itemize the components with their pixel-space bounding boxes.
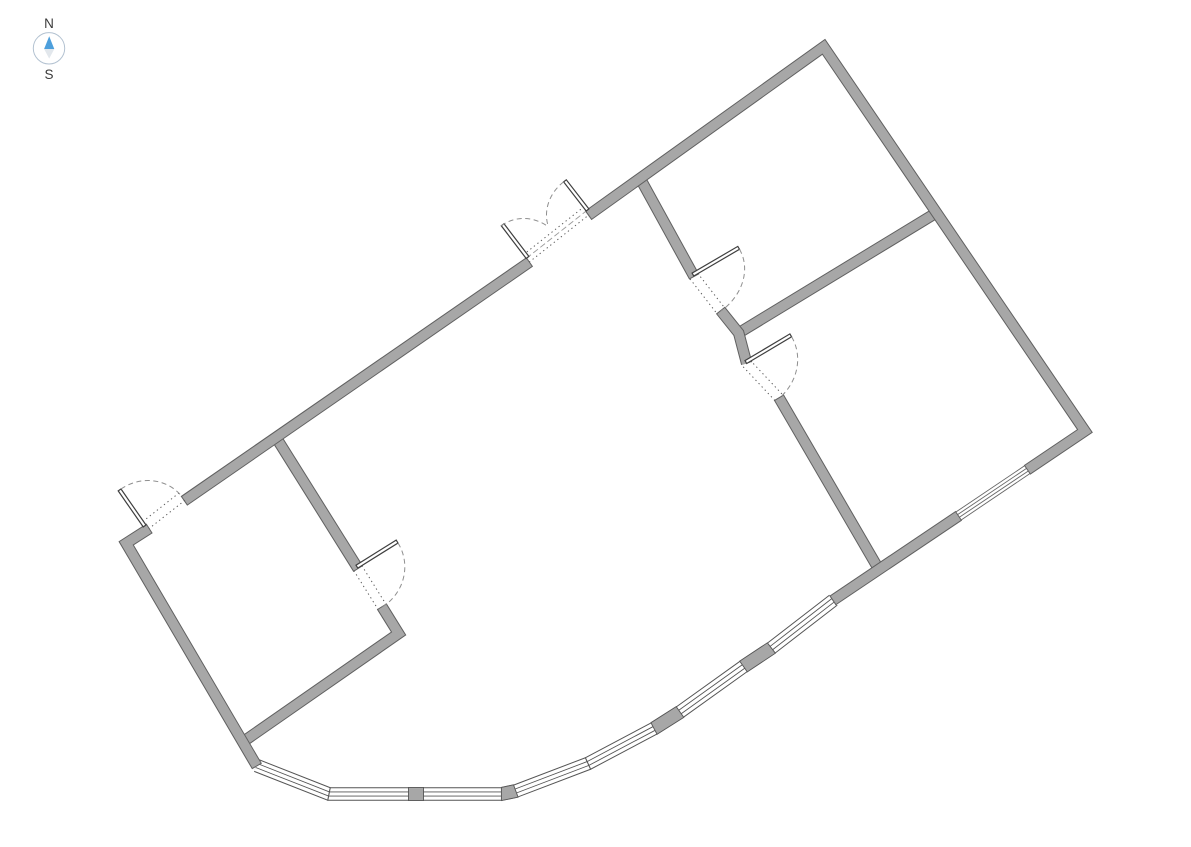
svg-text:S: S bbox=[44, 67, 53, 82]
svg-text:N: N bbox=[44, 16, 54, 31]
